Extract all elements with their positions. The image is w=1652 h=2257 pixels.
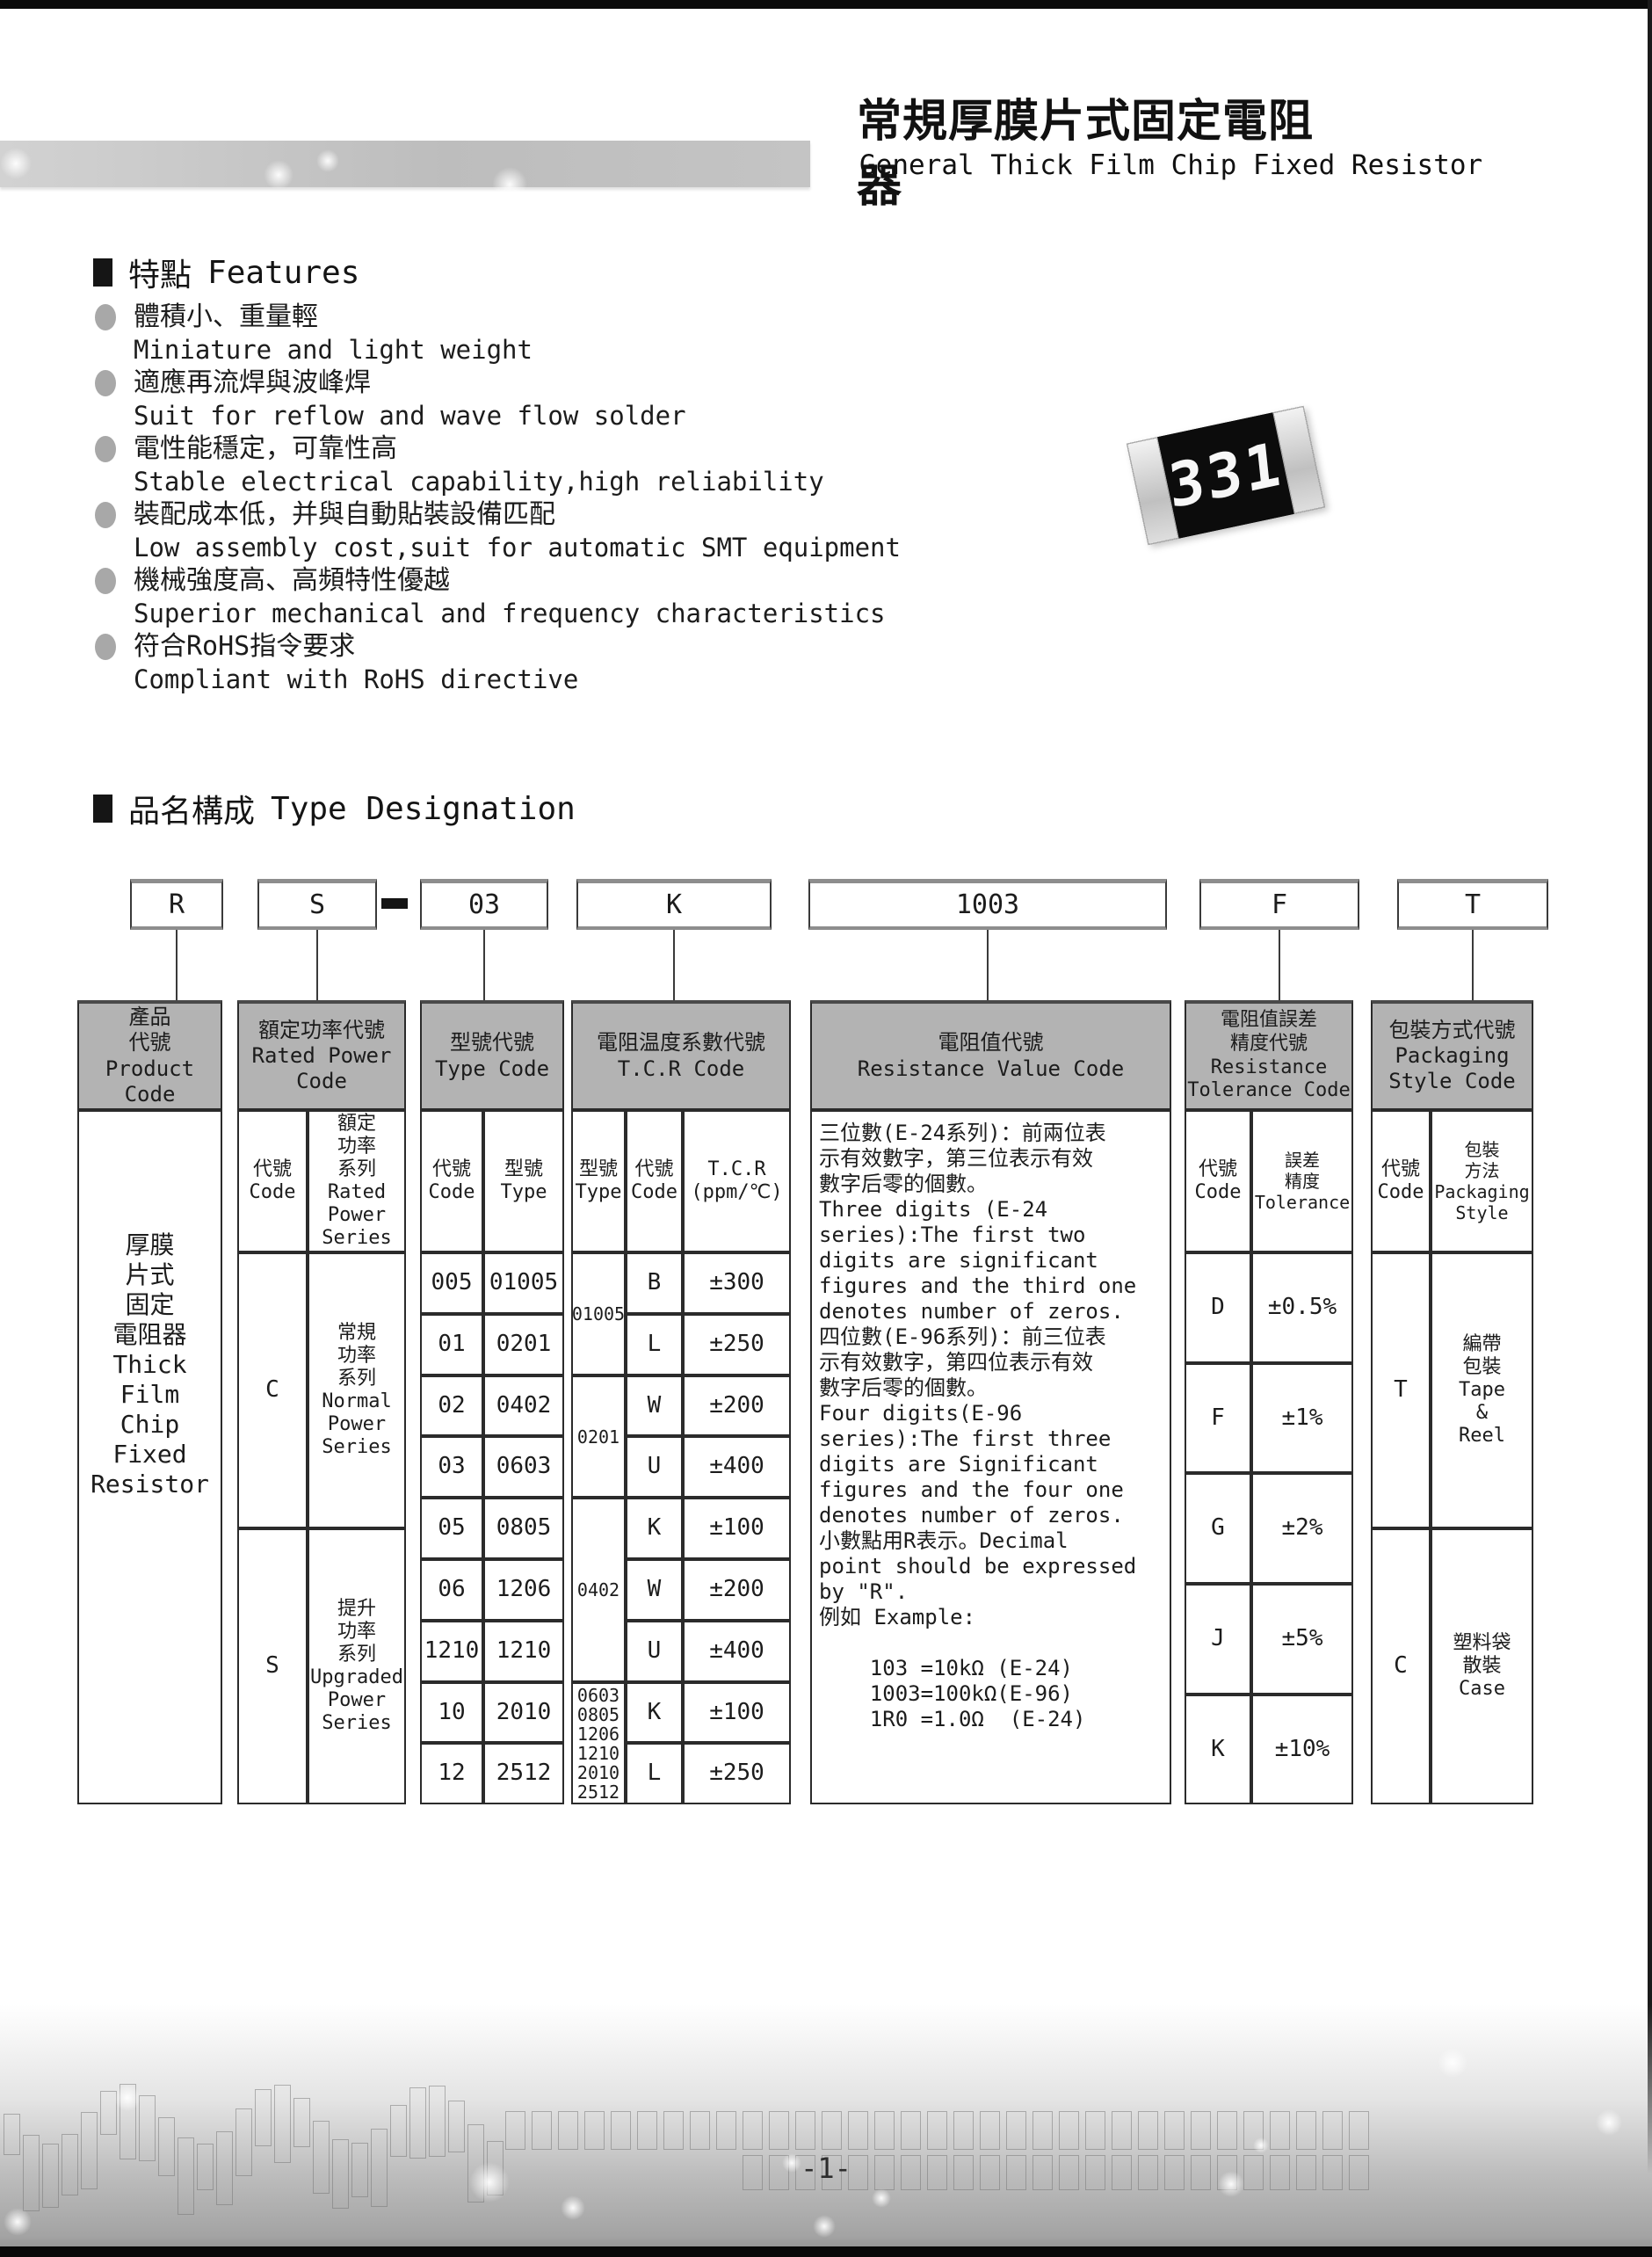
decor-rectangle	[1349, 2111, 1369, 2150]
tcr-code-cell: U	[626, 1436, 683, 1498]
decor-rectangle	[927, 2155, 947, 2190]
type-cell: 0805	[483, 1498, 564, 1559]
decor-rectangle	[42, 2144, 59, 2208]
type-cell: 2010	[483, 1682, 564, 1743]
packaging-style-cell: 塑料袋 散裝 Case	[1431, 1528, 1533, 1804]
chip-resistor-photo: 331	[1127, 406, 1325, 545]
rated-power-row-code: C	[237, 1252, 308, 1528]
packaging-code-cell: T	[1371, 1252, 1431, 1528]
sparkle-dot	[1438, 2048, 1467, 2078]
decor-rectangle	[716, 2111, 736, 2150]
decor-rectangle	[690, 2111, 710, 2150]
sparkle-dot	[4, 2208, 32, 2236]
packaging-code-cell: C	[1371, 1528, 1431, 1804]
tcr-code-cell: K	[626, 1682, 683, 1743]
type-code-cell: 10	[420, 1682, 483, 1743]
tcr-value-cell: ±100	[683, 1498, 791, 1559]
decor-rectangle	[235, 2108, 252, 2176]
packaging-header: 包裝方式代號 Packaging Style Code	[1371, 1000, 1533, 1110]
type-code-cell: 03	[420, 1436, 483, 1498]
type-cell: 1206	[483, 1559, 564, 1621]
decor-rectangle	[1059, 2111, 1079, 2150]
sparkle-dot	[813, 2215, 836, 2238]
resistor-face: 331	[1157, 412, 1294, 538]
type-cell: 2512	[483, 1743, 564, 1804]
sparkle-dot	[1218, 2171, 1244, 2197]
type-code-subheader-code: 代號 Code	[420, 1110, 483, 1252]
decor-rectangle	[1191, 2111, 1211, 2150]
type-code-header: 型號代號 Type Code	[420, 1000, 564, 1110]
decor-rectangle	[4, 2114, 20, 2155]
code-box-tcr: K	[576, 879, 772, 930]
decor-rectangle	[1085, 2155, 1105, 2190]
decor-rectangle	[743, 2111, 763, 2150]
section-marker-icon	[93, 258, 112, 287]
decor-rectangle	[1164, 2111, 1185, 2150]
tcr-group-type: 0402	[571, 1498, 626, 1682]
decor-rectangle	[81, 2112, 98, 2189]
tolerance-code-cell: K	[1185, 1695, 1251, 1804]
tolerance-code-cell: G	[1185, 1473, 1251, 1584]
decor-rectangle	[1006, 2111, 1026, 2150]
decor-rectangle	[1322, 2111, 1343, 2150]
code-box-rated-power: S	[257, 879, 377, 930]
decor-rectangle	[532, 2111, 552, 2150]
feature-item: 符合RoHS指令要求 Compliant with RoHS directive	[95, 630, 1061, 696]
tolerance-subheader-value: 誤差 精度 Tolerance	[1251, 1110, 1353, 1252]
tcr-value-cell: ±100	[683, 1682, 791, 1743]
decor-rectangle	[953, 2155, 974, 2190]
feature-text-zh: 機械強度高、高頻特性優越	[134, 564, 1061, 598]
connector-line	[483, 930, 485, 1000]
sparkle-dot	[1596, 2109, 1622, 2136]
rated-power-subheader-series: 額定 功率 系列 Rated Power Series	[308, 1110, 406, 1252]
decor-rectangle	[293, 2098, 310, 2147]
decor-rectangle	[1296, 2111, 1316, 2150]
connector-line	[987, 930, 989, 1000]
type-code-subheader-type: 型號 Type	[483, 1110, 564, 1252]
sparkle-dot	[561, 2195, 585, 2220]
rated-power-row-series: 常規 功率 系列 Normal Power Series	[308, 1252, 406, 1528]
tolerance-value-cell: ±0.5%	[1251, 1252, 1353, 1363]
decor-rectangle	[1191, 2155, 1211, 2190]
feature-text-zh: 體積小、重量輕	[134, 301, 1061, 334]
decor-rectangle	[1349, 2155, 1369, 2190]
decor-rectangle	[1243, 2155, 1264, 2190]
decor-rectangle	[448, 2101, 465, 2152]
packaging-style-cell: 編帶 包裝 Tape & Reel	[1431, 1252, 1533, 1528]
bottom-decor-band	[0, 2004, 1652, 2246]
tcr-subheader-type: 型號 Type	[571, 1110, 626, 1252]
top-decor-band	[0, 141, 810, 187]
decor-rectangle	[927, 2111, 947, 2150]
tcr-code-cell: B	[626, 1252, 683, 1314]
feature-item: 裝配成本低，并與自動貼裝設備匹配 Low assembly cost,suit …	[95, 498, 1061, 564]
type-designation-section-heading: 品名構成 Type Designation	[93, 786, 576, 831]
tolerance-value-cell: ±5%	[1251, 1584, 1353, 1695]
connector-line	[1279, 930, 1280, 1000]
decor-rectangle	[313, 2121, 330, 2194]
type-designation-heading-zh: 品名構成	[128, 786, 255, 831]
decor-rectangle	[274, 2085, 291, 2163]
decor-rectangle	[216, 2131, 233, 2205]
feature-text-en: Miniature and light weight	[134, 334, 1061, 366]
type-code-cell: 01	[420, 1314, 483, 1375]
type-cell: 0402	[483, 1375, 564, 1436]
tcr-value-cell: ±200	[683, 1375, 791, 1436]
tcr-code-cell: W	[626, 1559, 683, 1621]
decor-rectangle	[139, 2095, 156, 2161]
decor-rectangle	[1032, 2111, 1053, 2150]
type-cell: 0201	[483, 1314, 564, 1375]
decor-rectangle	[409, 2087, 426, 2159]
decor-rectangle	[980, 2155, 1000, 2190]
type-cell: 01005	[483, 1252, 564, 1314]
decor-rectangle	[197, 2144, 214, 2190]
tcr-subheader-value: T.C.R (ppm/℃)	[683, 1110, 791, 1252]
tolerance-subheader-code: 代號 Code	[1185, 1110, 1251, 1252]
decor-rectangle	[429, 2086, 446, 2157]
feature-text-zh: 裝配成本低，并與自動貼裝設備匹配	[134, 498, 1061, 532]
connector-line	[673, 930, 675, 1000]
feature-text-zh: 電性能穩定，可靠性高	[134, 432, 1061, 466]
decor-rectangle	[848, 2111, 868, 2150]
type-code-cell: 12	[420, 1743, 483, 1804]
decor-rectangle	[584, 2111, 605, 2150]
feature-text-en: Low assembly cost,suit for automatic SMT…	[134, 532, 1061, 564]
connector-line	[1472, 930, 1474, 1000]
product-code-header: 產品 代號 Product Code	[77, 1000, 222, 1110]
decor-rectangle	[611, 2111, 631, 2150]
code-box-product: R	[130, 879, 223, 930]
feature-text-en: Superior mechanical and frequency charac…	[134, 598, 1061, 630]
rated-power-row-code: S	[237, 1528, 308, 1804]
tcr-code-cell: L	[626, 1314, 683, 1375]
tcr-value-cell: ±400	[683, 1621, 791, 1682]
features-section-heading: 特點 Features	[93, 250, 359, 295]
decor-rectangle	[1217, 2111, 1237, 2150]
features-heading-en: Features	[207, 255, 359, 291]
sparkle-dot	[114, 2085, 141, 2111]
decor-rectangle	[1006, 2155, 1026, 2190]
feature-text-en: Stable electrical capability,high reliab…	[134, 466, 1061, 498]
decor-rectangle	[178, 2137, 194, 2215]
decor-rectangle	[663, 2111, 684, 2150]
feature-text-en: Compliant with RoHS directive	[134, 664, 1061, 696]
decor-rectangle	[1085, 2111, 1105, 2150]
page-bottom-edge	[0, 2246, 1652, 2257]
rated-power-header: 額定功率代號 Rated Power Code	[237, 1000, 406, 1110]
type-cell: 0603	[483, 1436, 564, 1498]
decor-rectangle	[953, 2111, 974, 2150]
decor-rectangle	[1164, 2155, 1185, 2190]
decor-rectangle	[795, 2111, 815, 2150]
tcr-group-type: 0201	[571, 1375, 626, 1498]
feature-item: 機械強度高、高頻特性優越 Superior mechanical and fre…	[95, 564, 1061, 630]
bullet-icon	[95, 568, 116, 594]
connector-line	[316, 930, 318, 1000]
bullet-icon	[95, 370, 116, 396]
tcr-value-cell: ±250	[683, 1314, 791, 1375]
tcr-code-cell: K	[626, 1498, 683, 1559]
rated-power-row-series: 提升 功率 系列 Upgraded Power Series	[308, 1528, 406, 1804]
decor-rectangle	[351, 2143, 368, 2197]
tcr-group-type: 01005	[571, 1252, 626, 1375]
code-box-type: 03	[420, 879, 548, 930]
separator-dash	[381, 898, 408, 909]
feature-text-zh: 適應再流焊與波峰焊	[134, 366, 1061, 400]
decor-rectangle	[62, 2134, 78, 2195]
decor-rectangle	[1112, 2155, 1132, 2190]
decor-rectangle	[1032, 2155, 1053, 2190]
decor-rectangle	[822, 2111, 842, 2150]
decor-rectangle	[1296, 2155, 1316, 2190]
tcr-subheader-code: 代號 Code	[626, 1110, 683, 1252]
tolerance-header: 電阻值誤差 精度代號 Resistance Tolerance Code	[1185, 1000, 1353, 1110]
decor-rectangle	[980, 2111, 1000, 2150]
page-right-edge	[1648, 0, 1652, 2257]
decor-rectangle	[901, 2111, 921, 2150]
page-subtitle: General Thick Film Chip Fixed Resistor	[859, 149, 1482, 181]
tolerance-code-cell: F	[1185, 1363, 1251, 1473]
features-heading-zh: 特點	[128, 250, 192, 295]
packaging-subheader-style: 包裝 方法 Packaging Style	[1431, 1110, 1533, 1252]
decor-rectangle	[1059, 2155, 1079, 2190]
sparkle-dot	[872, 2188, 891, 2208]
decor-rectangle	[371, 2129, 388, 2207]
type-code-cell: 02	[420, 1375, 483, 1436]
type-code-cell: 06	[420, 1559, 483, 1621]
decor-rectangle	[390, 2105, 407, 2157]
feature-text-zh: 符合RoHS指令要求	[134, 630, 1061, 664]
resistance-value-body: 三位數(E-24系列)：前兩位表 示有效數字，第三位表示有效 數字后零的個數。 …	[810, 1110, 1171, 1804]
bullet-icon	[95, 634, 116, 660]
decor-rectangle	[769, 2111, 789, 2150]
page-number: -1-	[756, 2152, 896, 2185]
code-box-resistance: 1003	[808, 879, 1167, 930]
tolerance-code-cell: J	[1185, 1584, 1251, 1695]
decor-rectangle	[1270, 2155, 1290, 2190]
tolerance-code-cell: D	[1185, 1252, 1251, 1363]
decor-rectangle	[332, 2139, 349, 2209]
tcr-value-cell: ±300	[683, 1252, 791, 1314]
section-marker-icon	[93, 795, 112, 823]
tcr-value-cell: ±200	[683, 1559, 791, 1621]
tcr-value-cell: ±250	[683, 1743, 791, 1804]
sparkle-dot	[469, 2162, 510, 2203]
product-code-body: 厚膜 片式 固定 電阻器 Thick Film Chip Fixed Resis…	[77, 1110, 222, 1804]
resistance-value-header: 電阻值代號 Resistance Value Code	[810, 1000, 1171, 1110]
sparkle-dot	[1253, 2137, 1269, 2153]
tolerance-value-cell: ±10%	[1251, 1695, 1353, 1804]
sparkle-dot	[492, 167, 527, 202]
feature-item: 體積小、重量輕 Miniature and light weight	[95, 301, 1061, 366]
bullet-icon	[95, 436, 116, 462]
decor-rectangle	[1322, 2155, 1343, 2190]
decor-rectangle	[901, 2155, 921, 2190]
sparkle-dot	[0, 148, 32, 179]
tcr-value-cell: ±400	[683, 1436, 791, 1498]
bullet-icon	[95, 304, 116, 330]
decor-rectangle	[255, 2089, 272, 2146]
decor-rectangle	[505, 2111, 525, 2150]
decor-rectangle	[558, 2111, 578, 2150]
bullet-icon	[95, 502, 116, 528]
decor-rectangle	[158, 2117, 175, 2176]
datasheet-page: 常規厚膜片式固定電阻器 General Thick Film Chip Fixe…	[0, 0, 1652, 2257]
decor-rectangle	[637, 2111, 657, 2150]
packaging-subheader-code: 代號 Code	[1371, 1110, 1431, 1252]
sparkle-dot	[264, 160, 293, 190]
type-code-cell: 1210	[420, 1621, 483, 1682]
tolerance-value-cell: ±2%	[1251, 1473, 1353, 1584]
type-code-cell: 005	[420, 1252, 483, 1314]
type-code-cell: 05	[420, 1498, 483, 1559]
rated-power-subheader-code: 代號 Code	[237, 1110, 308, 1252]
tolerance-value-cell: ±1%	[1251, 1363, 1353, 1473]
decor-rectangle	[874, 2111, 895, 2150]
feature-item: 電性能穩定，可靠性高 Stable electrical capability,…	[95, 432, 1061, 498]
type-designation-heading-en: Type Designation	[271, 791, 576, 827]
feature-text-en: Suit for reflow and wave flow solder	[134, 400, 1061, 432]
page-top-edge	[0, 0, 1652, 9]
sparkle-dot	[316, 149, 339, 172]
tcr-header: 電阻温度系數代號 T.C.R Code	[571, 1000, 791, 1110]
resistor-marking: 331	[1165, 429, 1286, 522]
decor-rectangle	[23, 2135, 40, 2211]
code-box-tolerance: F	[1199, 879, 1359, 930]
tcr-code-cell: W	[626, 1375, 683, 1436]
tcr-code-cell: U	[626, 1621, 683, 1682]
feature-item: 適應再流焊與波峰焊 Suit for reflow and wave flow …	[95, 366, 1061, 432]
decor-rectangle	[1112, 2111, 1132, 2150]
tcr-code-cell: L	[626, 1743, 683, 1804]
connector-line	[176, 930, 178, 1000]
decor-rectangle	[1138, 2155, 1158, 2190]
decor-rectangle	[1270, 2111, 1290, 2150]
code-box-packaging: T	[1397, 879, 1548, 930]
type-cell: 1210	[483, 1621, 564, 1682]
decor-rectangle	[1138, 2111, 1158, 2150]
tcr-group-type: 0603 0805 1206 1210 2010 2512	[571, 1682, 626, 1804]
